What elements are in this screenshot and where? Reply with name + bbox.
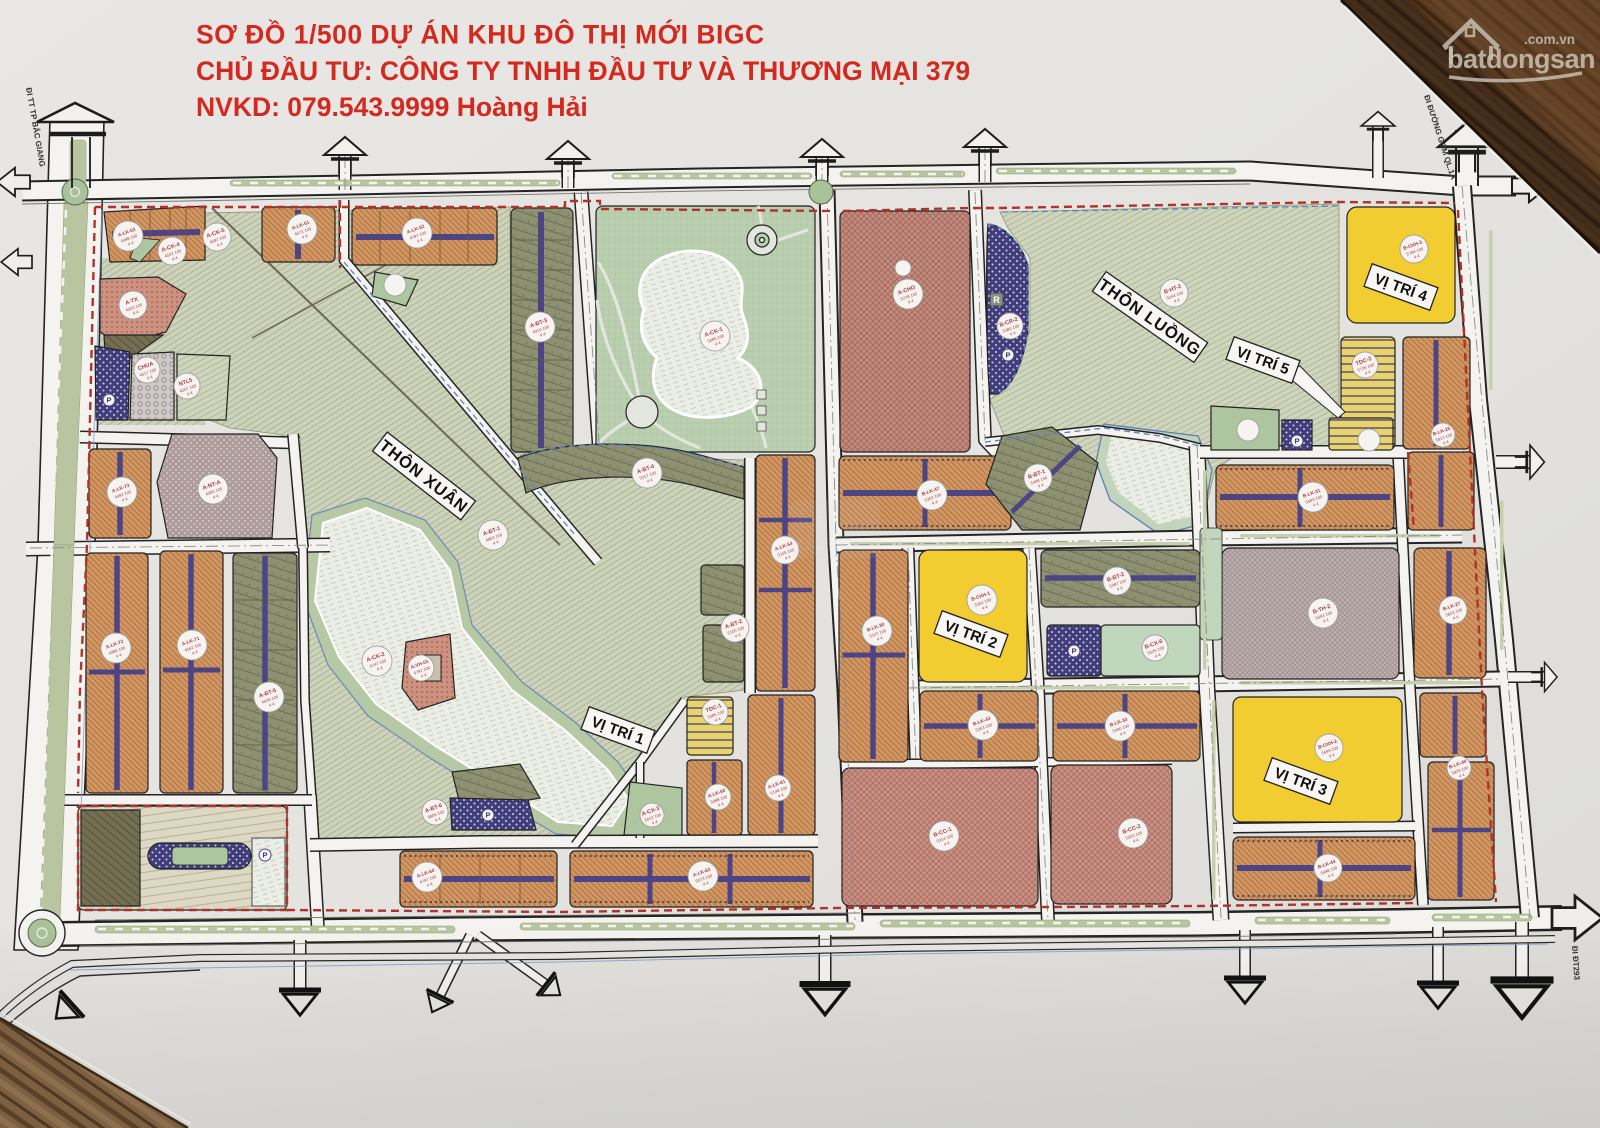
svg-text:CHỦ ĐẦU TƯ: CÔNG TY TNHH ĐẦU T: CHỦ ĐẦU TƯ: CÔNG TY TNHH ĐẦU TƯ VÀ THƯƠN…: [196, 56, 970, 86]
svg-text:batdongsan: batdongsan: [1447, 44, 1595, 74]
svg-text:.com.vn: .com.vn: [1524, 32, 1575, 47]
svg-text:NVKD: 079.543.9999 Hoàng Hải: NVKD: 079.543.9999 Hoàng Hải: [196, 92, 588, 122]
svg-text:SƠ ĐỒ 1/500 DỰ ÁN KHU ĐÔ THỊ M: SƠ ĐỒ 1/500 DỰ ÁN KHU ĐÔ THỊ MỚI BIGC: [196, 20, 765, 50]
